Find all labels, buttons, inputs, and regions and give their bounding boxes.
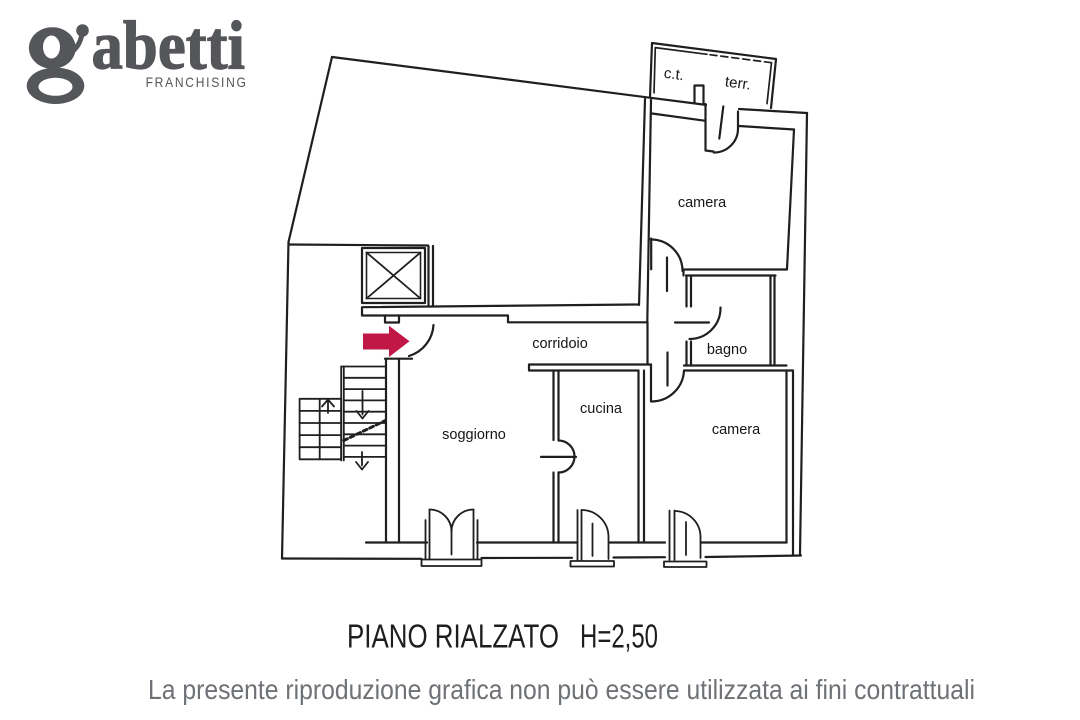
svg-text:camera: camera bbox=[678, 195, 727, 211]
svg-text:abetti: abetti bbox=[92, 7, 246, 83]
svg-text:PIANO RIALZATO: PIANO RIALZATO bbox=[347, 618, 559, 655]
svg-text:H=2,50: H=2,50 bbox=[580, 618, 658, 655]
svg-text:camera: camera bbox=[712, 422, 761, 438]
svg-text:corridoio: corridoio bbox=[532, 336, 588, 352]
svg-text:FRANCHISING: FRANCHISING bbox=[146, 74, 248, 90]
svg-text:terr.: terr. bbox=[724, 73, 752, 93]
svg-text:bagno: bagno bbox=[707, 342, 747, 358]
svg-text:c.t.: c.t. bbox=[663, 65, 685, 84]
svg-text:La presente riproduzione grafi: La presente riproduzione grafica non può… bbox=[148, 674, 975, 705]
svg-text:cucina: cucina bbox=[580, 401, 623, 417]
svg-text:soggiorno: soggiorno bbox=[442, 427, 506, 443]
